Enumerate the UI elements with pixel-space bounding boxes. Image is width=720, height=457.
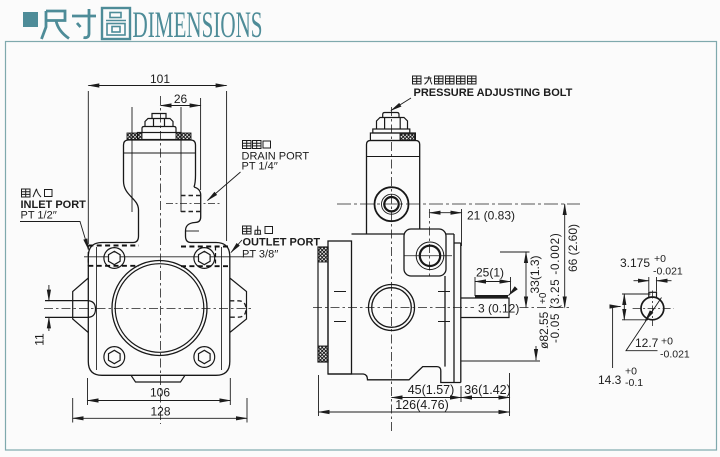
svg-text:128: 128: [150, 405, 170, 419]
svg-text:66 (2.60): 66 (2.60): [566, 224, 580, 272]
svg-text:-0.021: -0.021: [653, 266, 683, 278]
svg-text:PT 1/2′′: PT 1/2′′: [21, 210, 57, 222]
svg-text:PT 3/8′′: PT 3/8′′: [242, 249, 278, 261]
svg-text:25(1): 25(1): [476, 266, 504, 280]
svg-text:+0: +0: [654, 253, 666, 265]
svg-text:+0: +0: [625, 366, 637, 378]
svg-text:3.175: 3.175: [620, 256, 650, 270]
svg-text:+0: +0: [538, 292, 549, 304]
svg-text:12.7: 12.7: [635, 336, 659, 350]
svg-text:126(4.76): 126(4.76): [395, 398, 449, 412]
svg-text:101: 101: [150, 72, 170, 86]
svg-text:-0.05 (3.25 -0.002): -0.05 (3.25 -0.002): [550, 233, 562, 343]
svg-text:-0.021: -0.021: [660, 349, 690, 361]
svg-text:PT 1/4′′: PT 1/4′′: [242, 160, 278, 172]
svg-text:36(1.42): 36(1.42): [464, 383, 511, 397]
svg-text:DIMENSIONS: DIMENSIONS: [133, 4, 263, 46]
svg-text:45(1.57): 45(1.57): [408, 383, 455, 397]
svg-text:14.3: 14.3: [598, 373, 622, 387]
svg-text:ø82.55: ø82.55: [537, 311, 551, 349]
svg-text:-0.1: -0.1: [625, 377, 643, 389]
svg-text:26: 26: [174, 92, 188, 106]
svg-text:21 (0.83): 21 (0.83): [467, 209, 515, 223]
svg-text:+0: +0: [661, 336, 673, 348]
svg-text:PRESSURE ADJUSTING BOLT: PRESSURE ADJUSTING BOLT: [414, 87, 573, 99]
svg-text:OUTLET PORT: OUTLET PORT: [243, 237, 321, 249]
svg-text:33(1.3): 33(1.3): [528, 255, 542, 293]
svg-text:3 (0.12): 3 (0.12): [478, 302, 519, 316]
svg-text:106: 106: [150, 386, 170, 400]
svg-text:11: 11: [33, 333, 47, 346]
